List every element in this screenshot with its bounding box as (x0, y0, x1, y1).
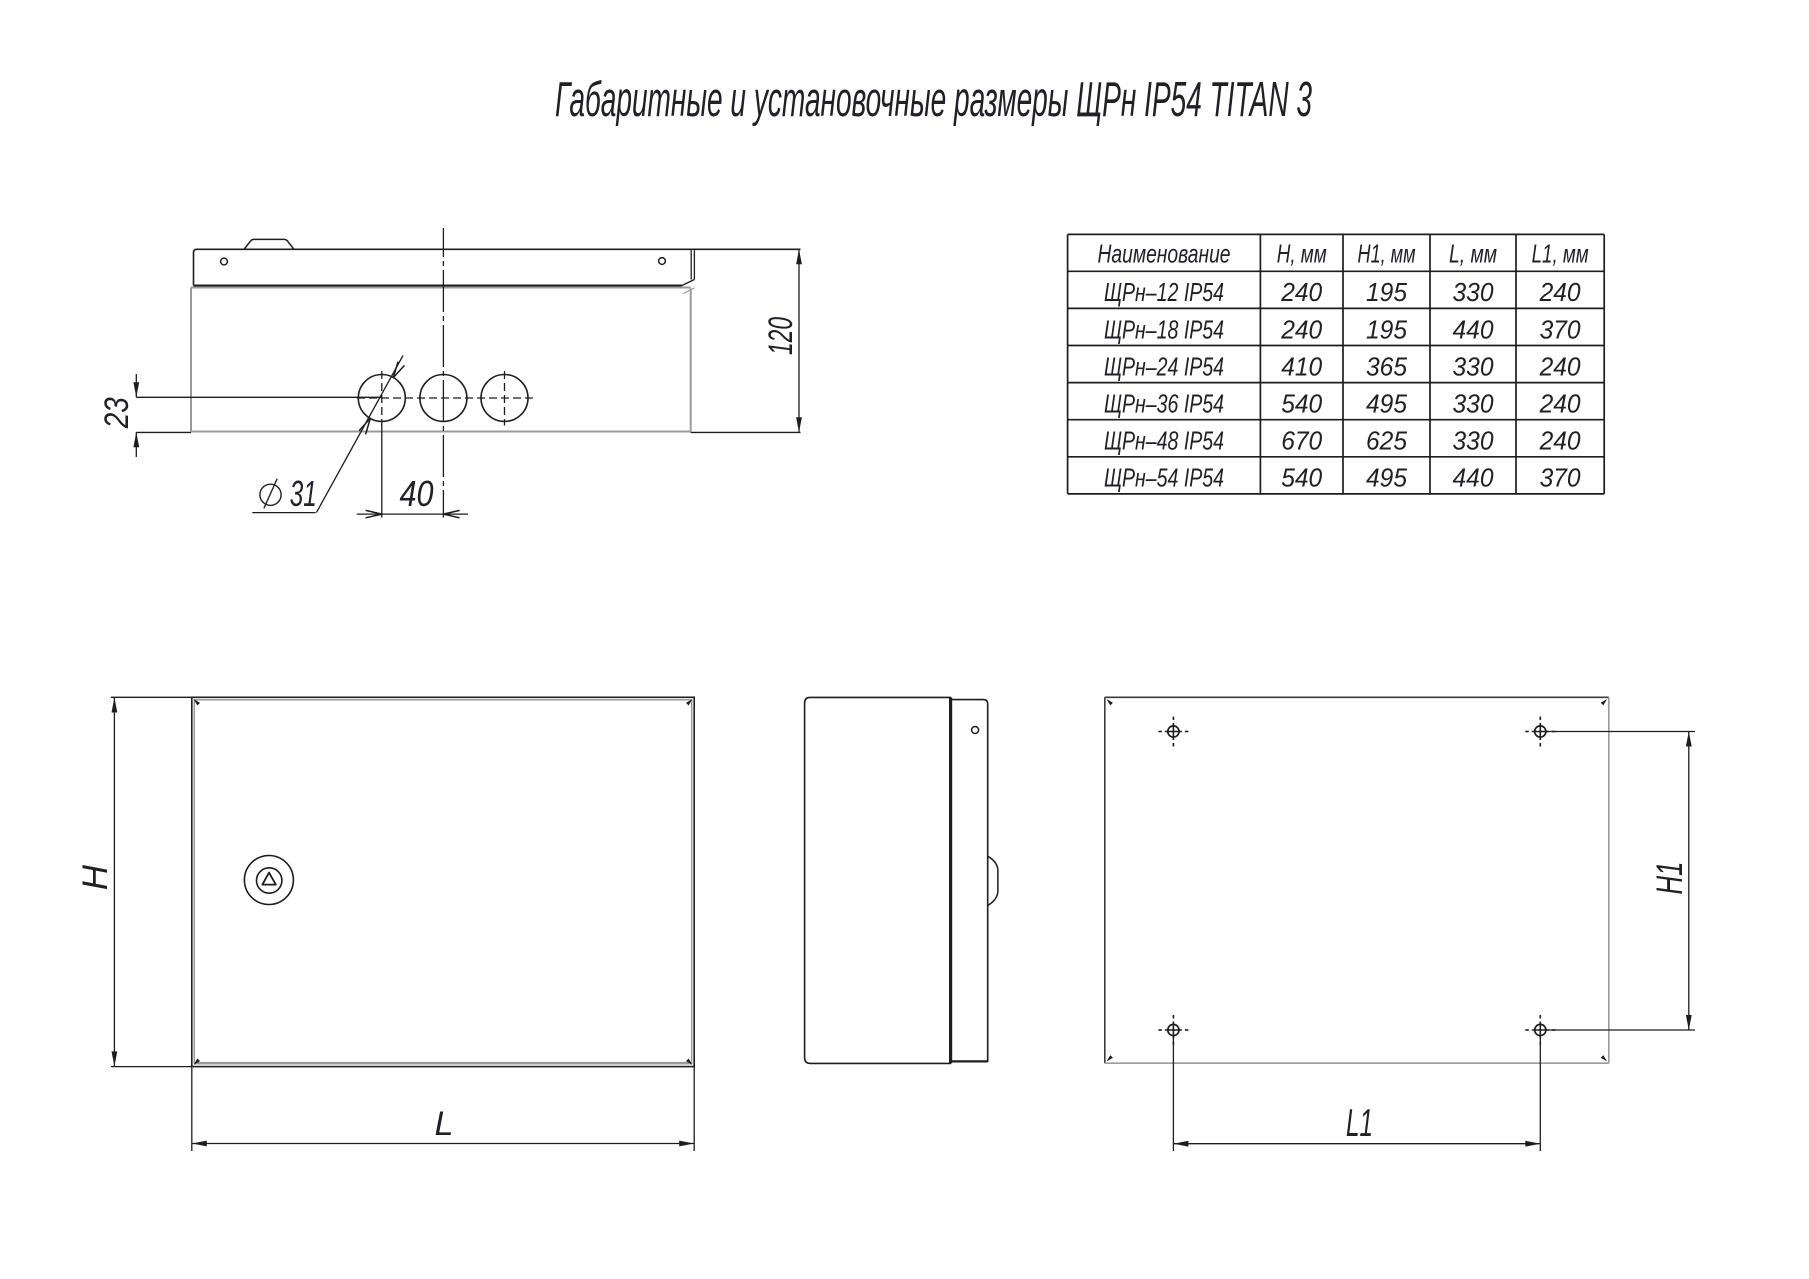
svg-text:L1, мм: L1, мм (1532, 239, 1589, 269)
svg-text:195: 195 (1366, 277, 1408, 307)
svg-text:240: 240 (1539, 426, 1581, 456)
svg-text:40: 40 (400, 473, 434, 514)
svg-text:L: L (435, 1105, 454, 1143)
svg-text:Наименование: Наименование (1098, 239, 1231, 269)
svg-text:120: 120 (762, 317, 800, 355)
svg-text:625: 625 (1366, 426, 1408, 456)
svg-text:330: 330 (1453, 351, 1495, 381)
svg-text:195: 195 (1366, 314, 1408, 344)
svg-text:23: 23 (98, 397, 136, 429)
svg-text:240: 240 (1539, 351, 1581, 381)
svg-text:440: 440 (1453, 314, 1495, 344)
svg-text:240: 240 (1539, 277, 1581, 307)
svg-text:540: 540 (1281, 389, 1323, 419)
svg-text:L1: L1 (1346, 1102, 1373, 1145)
svg-text:Габаритные и установочные разм: Габаритные и установочные размеры ЩРн IP… (555, 73, 1312, 127)
svg-text:330: 330 (1453, 426, 1495, 456)
svg-text:H: H (76, 864, 115, 890)
svg-text:370: 370 (1540, 463, 1582, 493)
svg-text:ЩРн–24 IP54: ЩРн–24 IP54 (1104, 351, 1224, 381)
svg-text:H1: H1 (1649, 862, 1690, 895)
svg-text:330: 330 (1453, 277, 1495, 307)
svg-text:ЩРн–48 IP54: ЩРн–48 IP54 (1104, 426, 1224, 456)
svg-text:440: 440 (1453, 463, 1495, 493)
svg-text:495: 495 (1366, 389, 1408, 419)
svg-text:240: 240 (1539, 389, 1581, 419)
svg-text:H1, мм: H1, мм (1358, 239, 1416, 269)
svg-text:L, мм: L, мм (1449, 239, 1497, 269)
svg-text:ЩРн–54 IP54: ЩРн–54 IP54 (1104, 463, 1224, 493)
svg-text:495: 495 (1366, 463, 1408, 493)
svg-text:540: 540 (1281, 463, 1323, 493)
svg-text:240: 240 (1280, 277, 1322, 307)
svg-text:H, мм: H, мм (1277, 239, 1327, 269)
svg-text:365: 365 (1366, 351, 1408, 381)
svg-text:240: 240 (1280, 314, 1322, 344)
svg-text:ЩРн–12 IP54: ЩРн–12 IP54 (1104, 277, 1224, 307)
svg-text:31: 31 (290, 473, 317, 514)
svg-text:ЩРн–36 IP54: ЩРн–36 IP54 (1104, 389, 1224, 419)
svg-text:370: 370 (1540, 314, 1582, 344)
svg-text:410: 410 (1281, 351, 1323, 381)
svg-text:ЩРн–18 IP54: ЩРн–18 IP54 (1104, 314, 1224, 344)
svg-text:330: 330 (1453, 389, 1495, 419)
svg-text:670: 670 (1281, 426, 1323, 456)
